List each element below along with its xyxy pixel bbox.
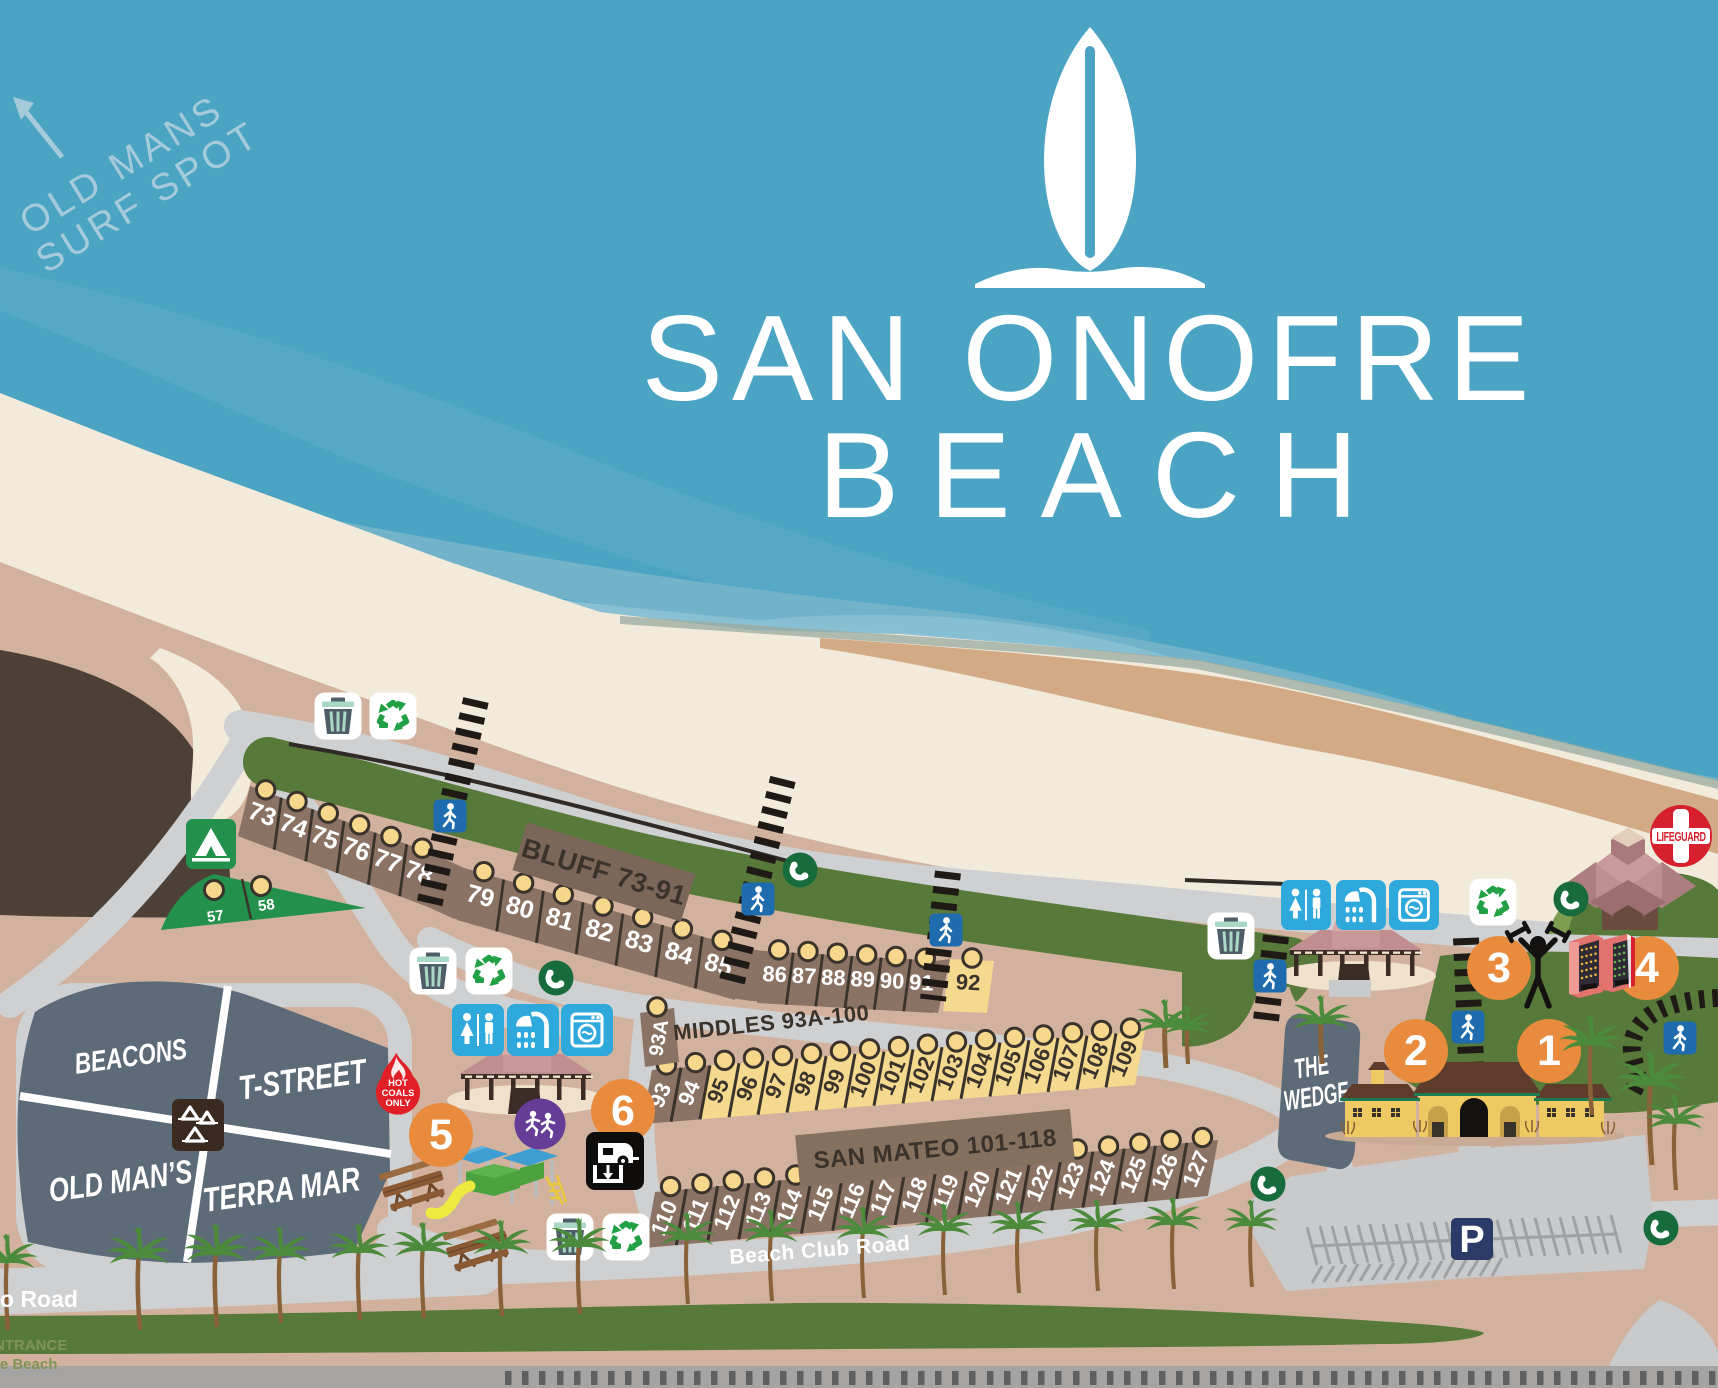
svg-text:89: 89 — [850, 966, 876, 992]
svg-text:HOT: HOT — [388, 1078, 408, 1088]
svg-text:1: 1 — [1537, 1027, 1561, 1075]
svg-text:57: 57 — [206, 907, 225, 926]
svg-text:5: 5 — [429, 1111, 453, 1159]
svg-text:87: 87 — [791, 963, 817, 989]
svg-text:6: 6 — [611, 1087, 635, 1135]
svg-text:88: 88 — [821, 964, 847, 990]
svg-text:BEACH: BEACH — [818, 407, 1388, 543]
svg-text:re Beach: re Beach — [0, 1356, 57, 1373]
svg-text:LIFEGUARD: LIFEGUARD — [1656, 831, 1706, 845]
svg-text:90: 90 — [879, 968, 905, 994]
svg-text:ONLY: ONLY — [385, 1098, 411, 1108]
svg-text:86: 86 — [762, 961, 788, 987]
svg-text:92: 92 — [955, 969, 981, 995]
svg-text:SAN ONOFRE: SAN ONOFRE — [642, 290, 1539, 426]
svg-text:P: P — [1459, 1219, 1484, 1261]
svg-text:o Road: o Road — [0, 1286, 78, 1312]
svg-text:3: 3 — [1487, 944, 1511, 992]
svg-text:COALS: COALS — [382, 1088, 415, 1098]
svg-text:58: 58 — [257, 896, 276, 915]
svg-text:NTRANCE: NTRANCE — [0, 1337, 67, 1354]
svg-text:2: 2 — [1404, 1027, 1428, 1075]
svg-text:4: 4 — [1635, 944, 1659, 992]
